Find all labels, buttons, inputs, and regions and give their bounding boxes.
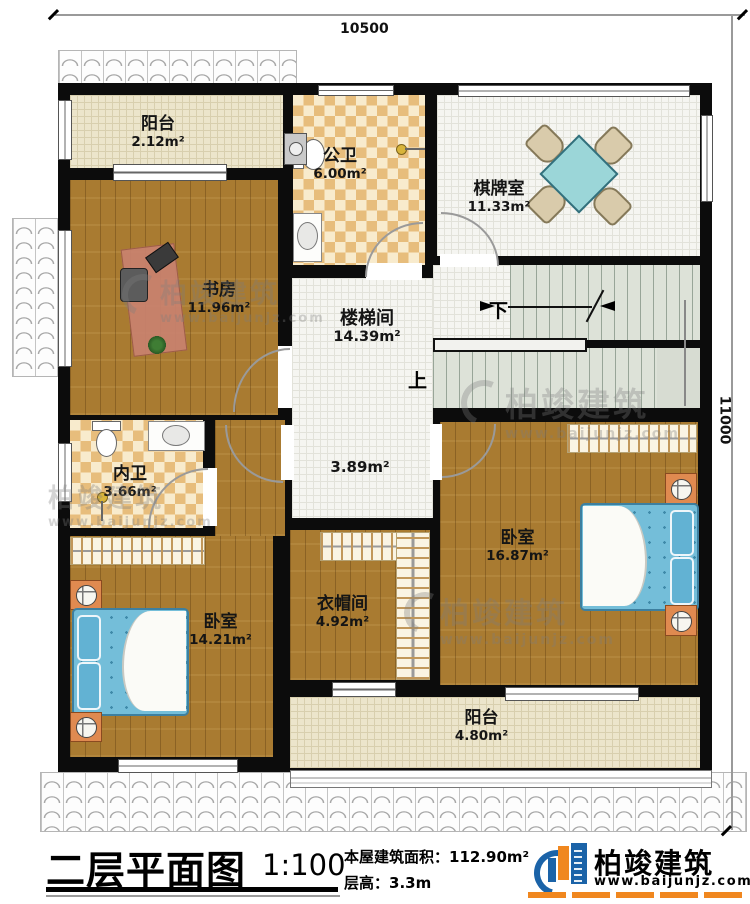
floor-height-value: 3.3m: [389, 874, 431, 892]
watermark-name: 柏竣建筑: [48, 478, 213, 515]
nightstand: [665, 473, 697, 504]
sliding-door-bedroom-balcony: [505, 687, 639, 701]
dimension-top-label: 10500: [340, 21, 389, 37]
sink: [162, 425, 190, 446]
room-name: 棋牌室: [443, 181, 555, 199]
room-area: 14.21m²: [163, 632, 278, 648]
toilet: [96, 429, 117, 457]
room-area: 14.39m²: [308, 329, 426, 346]
room-label-chess-room: 棋牌室 11.33m²: [443, 181, 555, 215]
room-area: 4.80m²: [424, 728, 539, 744]
room-area: 16.87m²: [460, 548, 575, 564]
room-area: 11.33m²: [443, 199, 555, 215]
bedroom-left-wardrobe: [70, 537, 205, 565]
sink: [297, 222, 318, 250]
door-handle: [396, 144, 407, 155]
watermark: 柏竣建筑 www.baijunjz.com: [440, 590, 615, 648]
watermark-url: www.baijunjz.com: [505, 426, 680, 442]
logo-building-icon-small: [548, 858, 556, 882]
watermark: 柏竣建筑 www.baijunjz.com: [160, 272, 325, 326]
room-area: 3.89m²: [310, 458, 410, 476]
stair-up-label: 上: [408, 366, 427, 393]
room-name: 衣帽间: [285, 596, 400, 614]
door-handle-stem: [405, 148, 425, 150]
stair-guardrail: [684, 300, 686, 406]
title-block: 二层平面图 1:100 本屋建筑面积：112.90m² 层高：3.3m 柏竣建筑…: [0, 838, 750, 904]
nightstand: [70, 580, 102, 610]
roof-hatch-top: [58, 50, 297, 85]
room-label-stairwell: 楼梯间 14.39m²: [308, 310, 426, 346]
roof-hatch-left: [12, 218, 60, 377]
logo-building-icon-blue: [571, 843, 587, 884]
balcony-railing: [290, 770, 712, 788]
cloakroom-closet-top: [320, 532, 398, 561]
room-name: 阳台: [98, 116, 218, 134]
room-label-public-bath: 公卫 6.00m²: [285, 148, 395, 182]
watermark-url: www.baijunjz.com: [160, 311, 325, 326]
stair-break-arrow-right: [600, 301, 615, 311]
pillow: [77, 662, 101, 710]
window-cloakroom: [332, 682, 396, 697]
window-chess-room-right: [701, 115, 713, 202]
building-area-value: 112.90m²: [449, 848, 529, 866]
watermark-name: 柏竣建筑: [505, 378, 680, 426]
logo-url: www.baijunjz.com: [594, 874, 750, 889]
nightstand: [70, 712, 102, 742]
lamp: [671, 479, 692, 500]
room-name: 公卫: [285, 148, 395, 166]
room-name: 楼梯间: [308, 310, 426, 329]
sliding-door-balcony-study: [113, 164, 227, 181]
window-bedroom-left: [118, 759, 238, 773]
room-label-bedroom-left: 卧室 14.21m²: [163, 614, 278, 648]
watermark: 柏竣建筑 www.baijunjz.com: [48, 478, 213, 530]
dimension-line-top: [55, 14, 745, 16]
nightstand: [665, 605, 697, 636]
room-label-balcony-top: 阳台 2.12m²: [98, 116, 218, 150]
lamp: [76, 717, 97, 738]
stair-down-label: 下: [489, 296, 508, 323]
lamp: [76, 585, 97, 606]
logo-accent-bar: [528, 892, 746, 898]
room-area: 2.12m²: [98, 134, 218, 150]
window-balcony-top-left: [58, 100, 72, 160]
stair-handrail: [433, 338, 587, 352]
title-underline: [46, 887, 338, 892]
watermark-name: 柏竣建筑: [440, 590, 615, 632]
plant: [148, 336, 166, 354]
window-public-bath: [318, 85, 394, 96]
watermark-url: www.baijunjz.com: [440, 632, 615, 648]
room-area: 6.00m²: [285, 166, 395, 182]
room-name: 阳台: [424, 710, 539, 728]
watermark: 柏竣建筑 www.baijunjz.com: [505, 378, 680, 442]
room-area: 4.92m²: [285, 614, 400, 630]
floor-height-line: 层高：3.3m: [344, 872, 431, 893]
building-area-line: 本屋建筑面积：112.90m²: [344, 846, 529, 867]
building-area-label: 本屋建筑面积：: [344, 848, 449, 866]
floor-height-label: 层高：: [344, 874, 389, 892]
pillow: [670, 557, 694, 605]
logo-building-icon-orange: [558, 846, 569, 880]
window-study-left: [58, 230, 72, 367]
pillow: [670, 510, 694, 556]
room-name: 卧室: [163, 614, 278, 632]
plan-scale: 1:100: [262, 848, 346, 882]
room-label-bedroom-right: 卧室 16.87m²: [460, 530, 575, 564]
watermark-name: 柏竣建筑: [160, 272, 325, 311]
room-name: 卧室: [460, 530, 575, 548]
door-gap-bedroom-right: [430, 424, 442, 480]
dimension-right-label: 11000: [716, 396, 732, 445]
pillow: [77, 615, 101, 661]
watermark-url: www.baijunjz.com: [48, 515, 213, 530]
room-label-corridor: 3.89m²: [310, 458, 410, 476]
room-label-balcony-bottom: 阳台 4.80m²: [424, 710, 539, 744]
window-chess-room-top: [458, 85, 690, 97]
title-underline-2: [46, 895, 340, 897]
lamp: [671, 611, 692, 632]
stair-down-line: [508, 306, 592, 308]
floor-plan-canvas: 10500 11000: [0, 0, 750, 904]
room-label-cloakroom: 衣帽间 4.92m²: [285, 596, 400, 630]
